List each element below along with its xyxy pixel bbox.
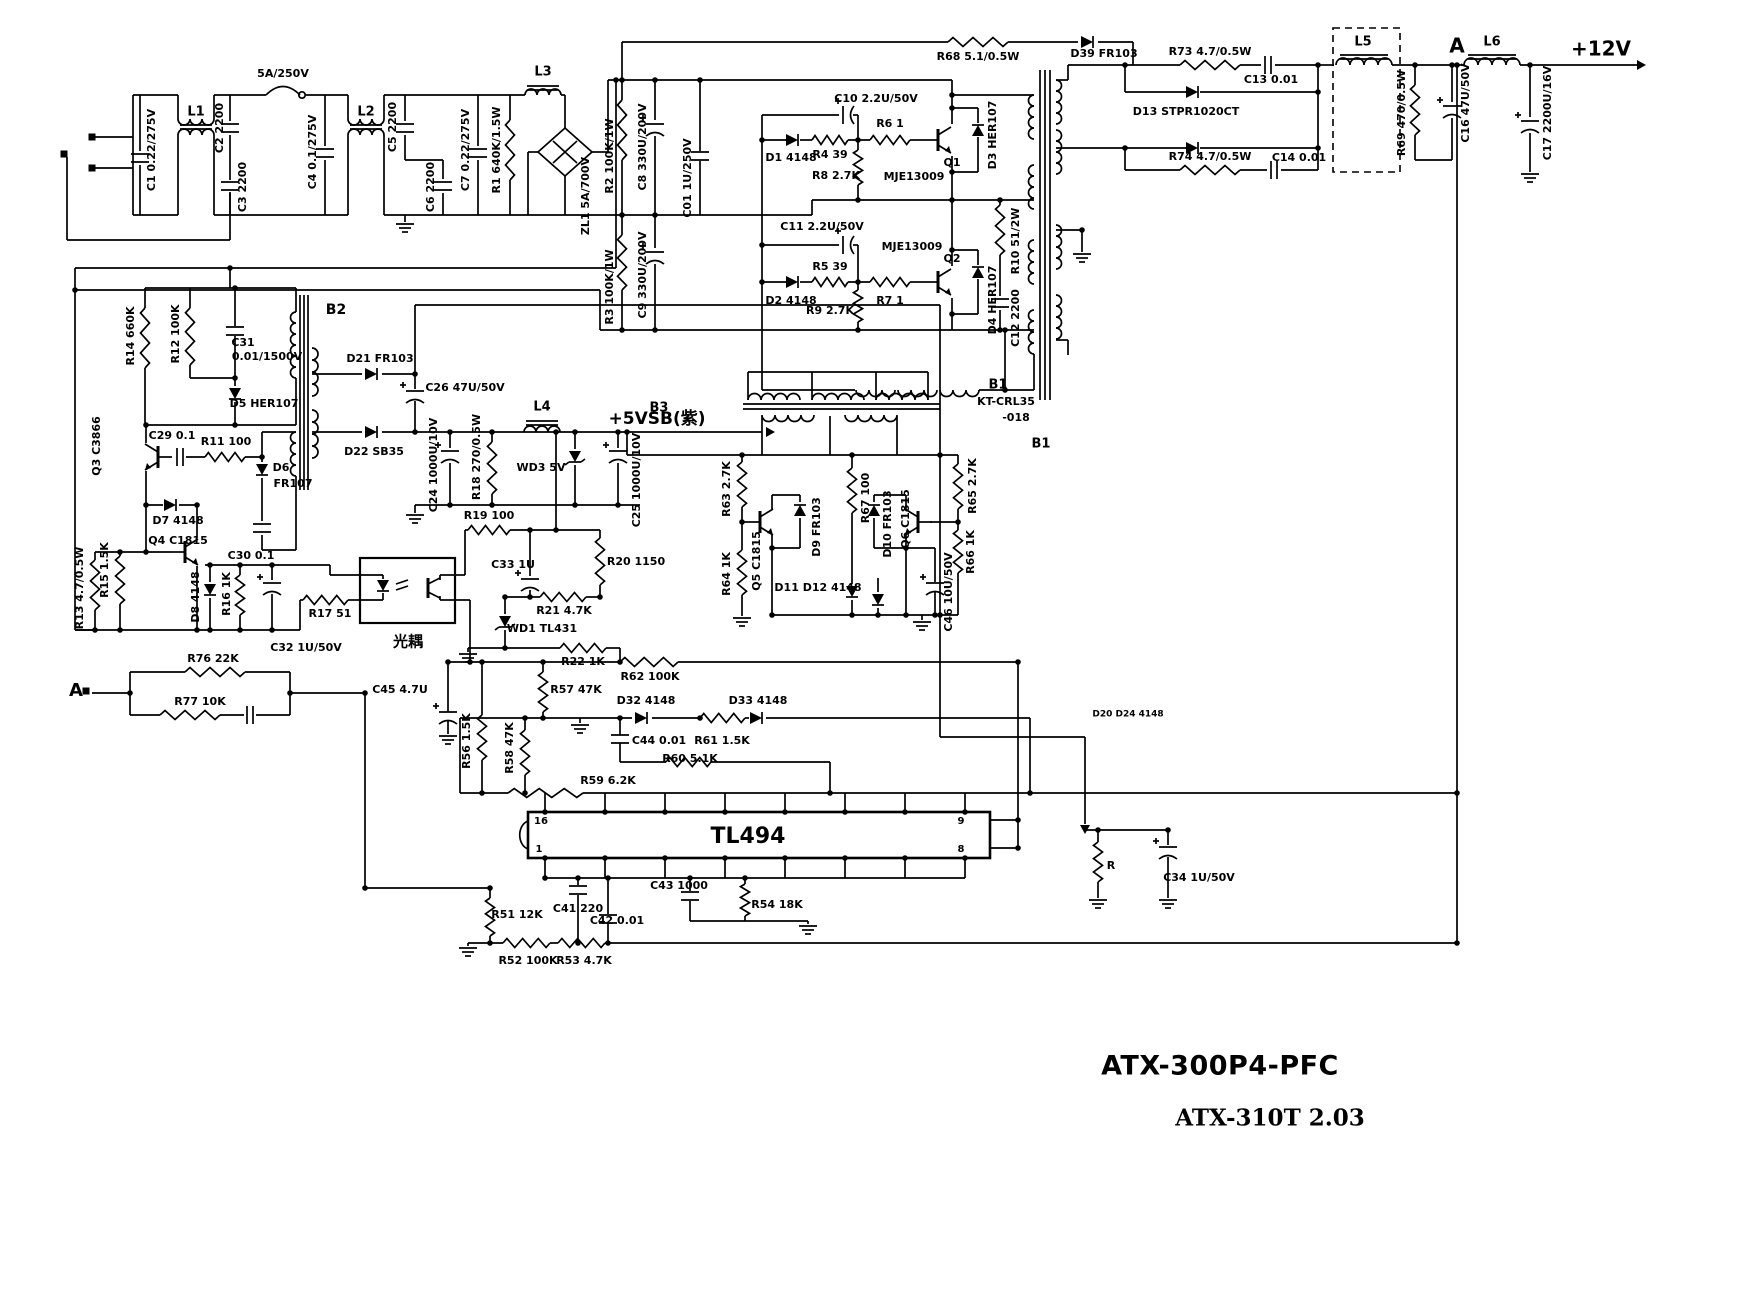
schematic-page: 5A/250VL1L2L3D1 4148C10 2.2U/50VR4 39R8 … — [0, 0, 1748, 1310]
component-label: 0.01/1500V — [232, 350, 303, 363]
component-label: C29 0.1 — [149, 429, 196, 442]
component-label: MJE13009 — [882, 240, 943, 253]
component-label: B2 — [326, 302, 346, 318]
component-label: A — [1449, 34, 1465, 58]
component-label: R64 1K — [720, 552, 733, 596]
component-label: R14 660K — [124, 306, 137, 366]
component-label: WD1 TL431 — [507, 622, 577, 635]
component-label: R76 22K — [187, 652, 239, 665]
component-label: R1 640K/1.5W — [490, 106, 503, 193]
component-label: C17 2200U/16V — [1541, 65, 1554, 160]
component-label: R4 39 — [812, 148, 847, 161]
component-label: R7 1 — [876, 294, 904, 307]
component-label: -018 — [1002, 411, 1030, 424]
component-label: R68 5.1/0.5W — [937, 50, 1020, 63]
component-label: C2 2200 — [213, 103, 226, 154]
component-label: L3 — [534, 65, 551, 80]
component-label: D33 4148 — [729, 694, 788, 707]
component-label: C8 330U/200V — [636, 103, 649, 190]
component-label: C7 0.22/275V — [459, 108, 472, 191]
component-label: R22 1K — [561, 655, 605, 668]
component-label: R74 4.7/0.5W — [1169, 150, 1252, 163]
component-label: R20 1150 — [607, 555, 666, 568]
component-label: C1 0.22/275V — [145, 108, 158, 191]
component-label: C11 2.2U/50V — [780, 220, 864, 233]
component-label: Q5 C1815 — [750, 531, 763, 591]
component-label: C46 10U/50V — [942, 552, 955, 632]
component-label: D6 — [273, 461, 290, 474]
component-label: MJE13009 — [884, 170, 945, 183]
component-label: R69 470/0.5W — [1395, 70, 1408, 156]
component-label: TL494 — [711, 824, 786, 849]
component-label: R77 10K — [174, 695, 226, 708]
component-label: R13 4.7/0.5W — [73, 547, 86, 630]
component-label: A — [69, 680, 83, 701]
component-label: R3 100K/1W — [603, 249, 616, 324]
component-label: C4 0.1/275V — [306, 114, 319, 189]
component-label: R21 4.7K — [536, 604, 592, 617]
component-label: D7 4148 — [152, 514, 203, 527]
component-label: R56 1.5K — [460, 713, 473, 769]
component-label: L1 — [187, 105, 204, 120]
component-label: D11 D12 4148 — [774, 581, 861, 594]
component-label: C5 2200 — [386, 102, 399, 153]
component-label: R5 39 — [812, 260, 847, 273]
component-label: C3 2200 — [236, 162, 249, 213]
component-label: C44 0.01 — [632, 734, 686, 747]
schematic-revision-text: ATX-310T 2.03 — [1175, 1105, 1364, 1132]
component-label: D32 4148 — [617, 694, 676, 707]
component-label: KT-CRL35 — [977, 395, 1035, 408]
component-label: D8 4148 — [189, 571, 202, 622]
component-label: R10 51/2W — [1009, 208, 1022, 275]
component-label: C31 — [231, 336, 254, 349]
component-label: 9 — [958, 816, 965, 827]
component-label: D39 FR103 — [1070, 47, 1137, 60]
component-label: L4 — [533, 400, 550, 415]
component-label: R65 2.7K — [966, 458, 979, 514]
component-label: C9 330U/200V — [636, 231, 649, 318]
component-label: Q4 C1815 — [148, 534, 208, 547]
component-label: C01 1U/250V — [681, 138, 694, 218]
component-label: 光耦 — [392, 633, 423, 651]
component-label: R59 6.2K — [580, 774, 636, 787]
component-label: R62 100K — [620, 670, 680, 683]
component-label: R8 2.7K — [812, 169, 860, 182]
component-label: 5A/250V — [257, 67, 309, 80]
component-label: R16 1K — [220, 572, 233, 616]
component-label: Q3 C3866 — [90, 416, 103, 476]
component-label: R73 4.7/0.5W — [1169, 45, 1252, 58]
schematic-svg: 5A/250VL1L2L3D1 4148C10 2.2U/50VR4 39R8 … — [0, 0, 1748, 1310]
component-label: C13 0.01 — [1244, 73, 1298, 86]
component-label: B3 — [650, 401, 669, 416]
component-label: R63 2.7K — [720, 461, 733, 517]
component-label: C32 1U/50V — [270, 641, 342, 654]
component-label: C14 0.01 — [1272, 151, 1326, 164]
component-label: ZL1 5A/700V — [579, 156, 592, 235]
component-label: 16 — [534, 816, 548, 827]
component-label: Q6 C1815 — [899, 489, 912, 549]
component-label: C25 1000U/10V — [630, 432, 643, 527]
component-label: C33 1U — [491, 558, 535, 571]
component-label: B1 — [1032, 437, 1051, 452]
component-label: R51 12K — [491, 908, 543, 921]
component-label: R67 100 — [859, 472, 872, 523]
component-label: C10 2.2U/50V — [834, 92, 918, 105]
component-label: R52 100K — [498, 954, 558, 967]
component-label: R2 100K/1W — [603, 118, 616, 193]
component-label: WD3 5V — [517, 461, 566, 474]
component-label: R66 1K — [964, 530, 977, 574]
component-label: R54 18K — [751, 898, 803, 911]
component-label: L6 — [1483, 35, 1500, 50]
component-label: C43 1000 — [650, 879, 708, 892]
component-label: D20 D24 4148 — [1092, 710, 1163, 720]
component-label: C12 2200 — [1009, 289, 1022, 347]
component-label: L2 — [357, 105, 374, 120]
component-label: D1 4148 — [765, 151, 816, 164]
component-label: C34 1U/50V — [1163, 871, 1235, 884]
component-label: L5 — [1354, 35, 1371, 50]
component-label: B1 — [989, 378, 1008, 393]
component-label: C45 4.7U — [372, 683, 428, 696]
component-label: R6 1 — [876, 117, 904, 130]
component-label: C26 47U/50V — [425, 381, 505, 394]
component-label: C6 2200 — [424, 162, 437, 213]
component-label: R57 47K — [550, 683, 602, 696]
component-label: D13 STPR1020CT — [1133, 105, 1240, 118]
component-label: R53 4.7K — [556, 954, 612, 967]
component-label: C30 0.1 — [228, 549, 275, 562]
schematic-graphics: 5A/250VL1L2L3D1 4148C10 2.2U/50VR4 39R8 … — [61, 28, 1647, 967]
component-label: +12V — [1571, 37, 1632, 61]
component-label: R15 1.5K — [98, 542, 111, 598]
component-label: R9 2.7K — [806, 304, 854, 317]
component-label: R17 51 — [309, 607, 352, 620]
component-label: D10 FR103 — [881, 490, 894, 557]
component-label: 1 — [536, 844, 543, 855]
component-label: R19 100 — [464, 509, 515, 522]
component-label: D3 HER107 — [986, 101, 999, 170]
component-label: R12 100K — [169, 304, 182, 364]
component-label: R18 270/0.5W — [470, 414, 483, 500]
component-label: R61 1.5K — [694, 734, 750, 747]
component-label: C42 0.01 — [590, 914, 644, 927]
component-label: C16 47U/50V — [1459, 63, 1472, 143]
component-label: FR107 — [274, 477, 313, 490]
component-label: D9 FR103 — [810, 497, 823, 557]
component-label: D4 HER107 — [986, 266, 999, 335]
component-label: R58 47K — [503, 722, 516, 774]
component-label: D5 HER107 — [230, 397, 299, 410]
component-label: Q2 — [943, 252, 960, 265]
component-label: R60 5.1K — [662, 752, 718, 765]
component-label: R — [1107, 859, 1116, 872]
component-label: C24 1000U/10V — [427, 417, 440, 512]
component-label: 8 — [958, 844, 965, 855]
component-label: Q1 — [943, 156, 960, 169]
component-label: D22 SB35 — [344, 445, 404, 458]
component-label: D21 FR103 — [346, 352, 413, 365]
component-label: R11 100 — [201, 435, 252, 448]
schematic-model-title: ATX-300P4-PFC — [1101, 1051, 1339, 1082]
